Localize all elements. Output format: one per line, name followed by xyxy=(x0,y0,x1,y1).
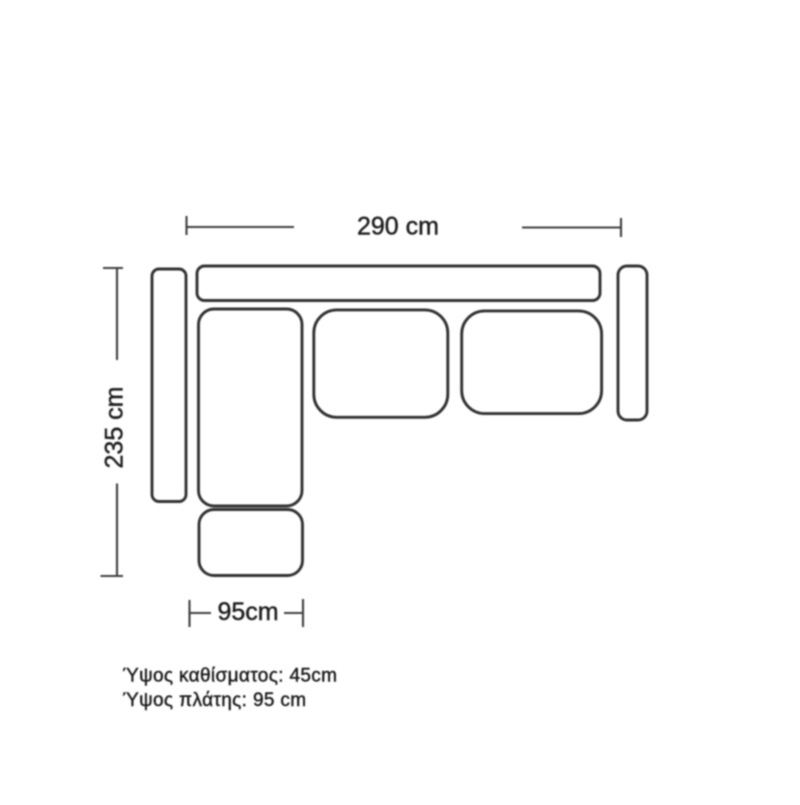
svg-text:95cm: 95cm xyxy=(218,598,279,626)
svg-text:Ύψος καθίσματος: 45cm: Ύψος καθίσματος: 45cm xyxy=(123,666,338,687)
svg-text:290 cm: 290 cm xyxy=(357,213,439,241)
svg-text:235 cm: 235 cm xyxy=(101,387,129,469)
svg-text:Ύψος πλάτης: 95 cm: Ύψος πλάτης: 95 cm xyxy=(123,690,307,711)
